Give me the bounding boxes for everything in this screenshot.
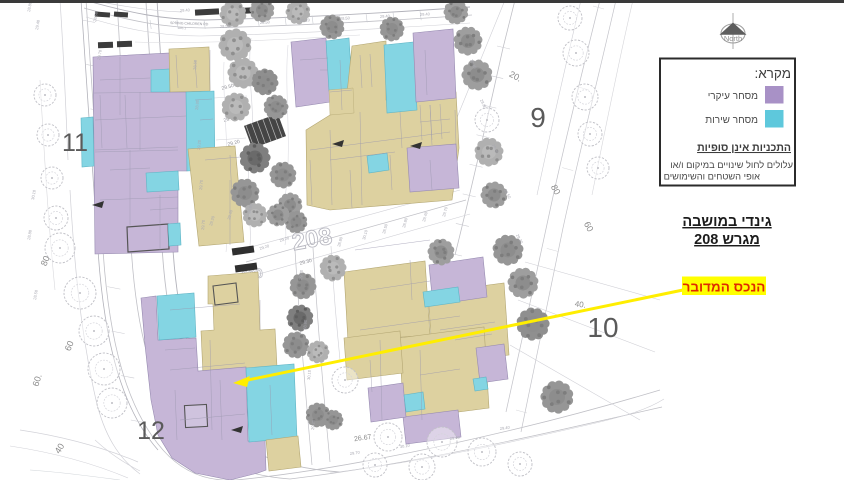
svg-text:הנכס המדובר: הנכס המדובר (683, 280, 766, 295)
svg-text:North: North (724, 34, 742, 43)
svg-text:התכניות אינן סופיות: התכניות אינן סופיות (697, 142, 791, 154)
svg-text:28.50: 28.50 (192, 59, 198, 70)
svg-text:29.70: 29.70 (200, 219, 206, 230)
svg-text:28.80: 28.80 (194, 99, 200, 110)
svg-text:40.: 40. (574, 299, 586, 309)
svg-text:גינדי במושבה: גינדי במושבה (682, 214, 771, 230)
svg-text:10: 10 (587, 312, 618, 343)
svg-text:30.10: 30.10 (306, 369, 312, 380)
svg-text:28.50: 28.50 (220, 23, 231, 29)
svg-text:29.40: 29.40 (420, 11, 431, 17)
svg-text:28.50: 28.50 (260, 19, 271, 25)
svg-text:מסחר שירות: מסחר שירות (705, 115, 758, 126)
svg-text:29.40: 29.40 (380, 13, 391, 19)
svg-text:28.80: 28.80 (302, 319, 308, 330)
svg-text:מגרש 208: מגרש 208 (694, 232, 760, 248)
svg-text:אופי השטחים והשימושים: אופי השטחים והשימושים (664, 172, 761, 182)
svg-text:445.1: 445.1 (178, 26, 186, 30)
svg-text:28.50: 28.50 (340, 15, 351, 21)
svg-text:29.20: 29.20 (310, 419, 316, 430)
svg-text:מסחר עיקרי: מסחר עיקרי (708, 91, 758, 102)
svg-text:עלולים לחול שינויים במיקום ו/א: עלולים לחול שינויים במיקום ו/או (670, 159, 793, 170)
svg-text:29.20: 29.20 (196, 139, 202, 150)
svg-text:30.10: 30.10 (300, 17, 311, 23)
svg-text:11: 11 (62, 129, 88, 157)
svg-text:9: 9 (530, 102, 546, 133)
svg-text:12: 12 (137, 417, 165, 445)
svg-text:29.70: 29.70 (198, 179, 204, 190)
svg-text:29.70: 29.70 (298, 269, 304, 280)
svg-text:מקרא:: מקרא: (754, 66, 791, 81)
svg-text:29.40: 29.40 (180, 7, 191, 13)
